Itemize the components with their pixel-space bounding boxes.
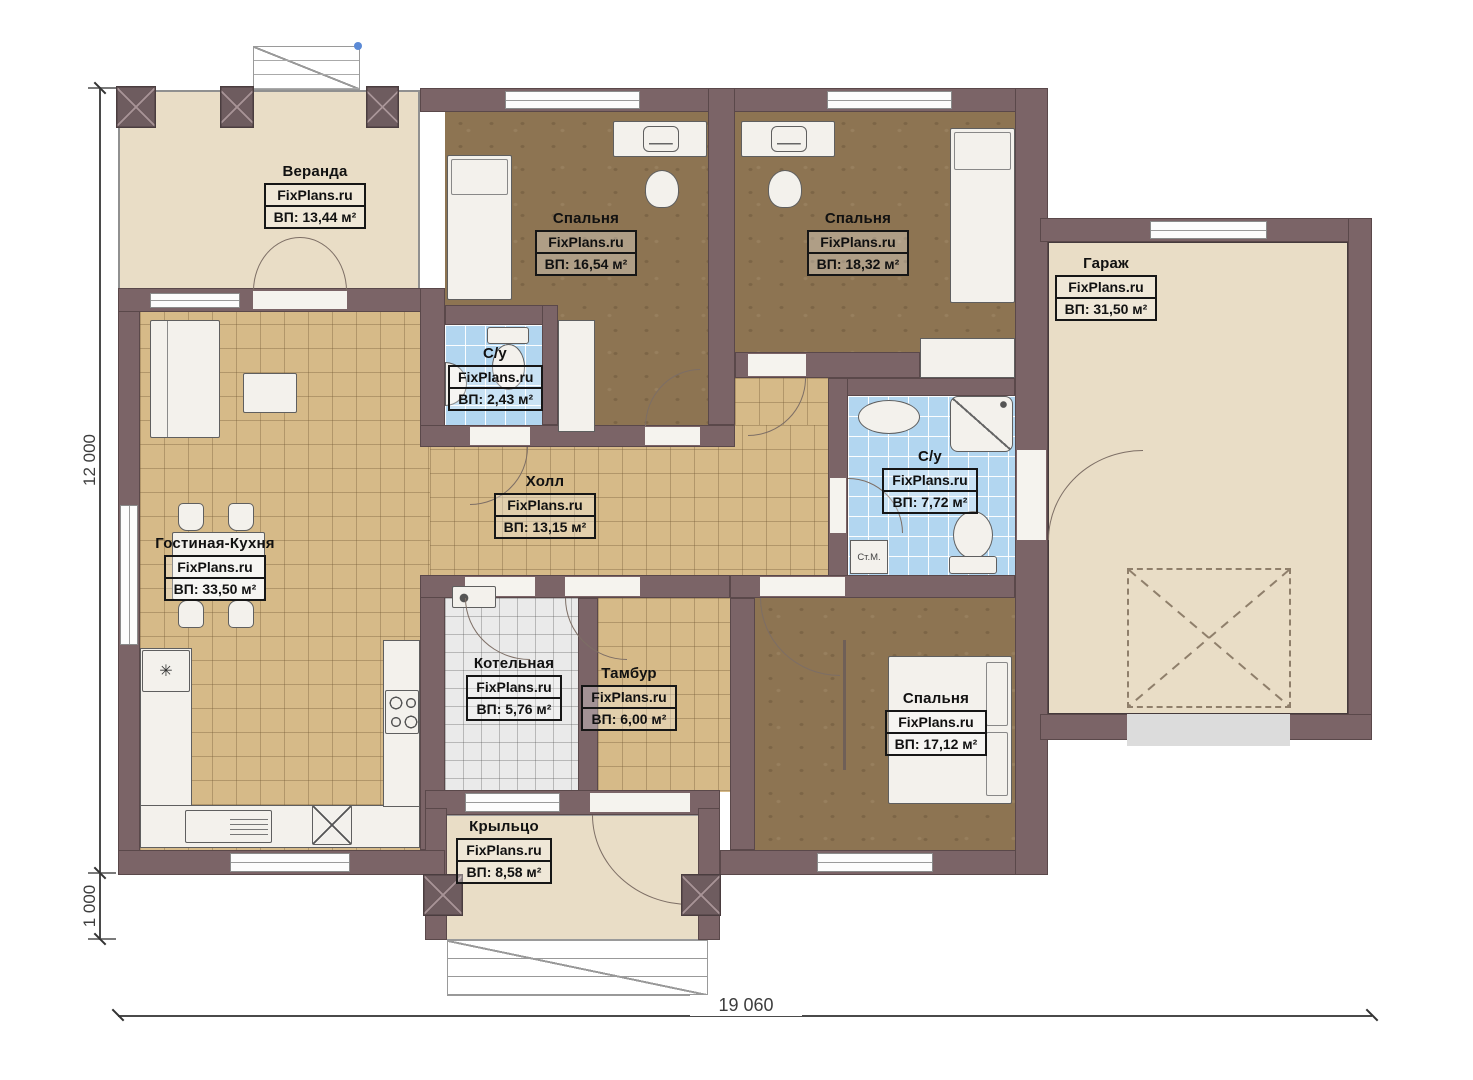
room-area: ВП: 13,44 м² <box>266 207 365 227</box>
desk-chair <box>768 170 802 208</box>
survey-point-dot <box>354 42 362 50</box>
room-label-boiler: Котельная FixPlans.ru ВП: 5,76 м² <box>460 655 568 721</box>
garage-top-window <box>1150 221 1267 239</box>
watermark: FixPlans.ru <box>1057 277 1156 299</box>
room-label-bathroom-large: С/у FixPlans.ru ВП: 7,72 м² <box>878 448 982 514</box>
dining-chair <box>228 600 254 628</box>
bathroom-large-door-opening <box>830 478 846 533</box>
wall-bedroom-divider <box>708 88 735 425</box>
bathroom-small-door-opening <box>470 427 530 445</box>
room-label-bedroom1: Спальня FixPlans.ru ВП: 16,54 м² <box>528 210 644 276</box>
floor-plan: ✳ Ст.М. <box>0 0 1473 1080</box>
sofa <box>150 320 220 438</box>
oven-appliance <box>185 810 272 843</box>
closet <box>920 338 1015 378</box>
room-title: Котельная <box>460 655 568 672</box>
porch-stairs <box>447 940 708 996</box>
room-title: С/у <box>448 345 542 362</box>
room-area: ВП: 17,12 м² <box>887 734 986 754</box>
kitchen-sink: ✳ <box>142 650 190 692</box>
room-title: Веранда <box>252 163 378 180</box>
garage-gate-opening <box>1127 714 1290 746</box>
room-label-bedroom2: Спальня FixPlans.ru ВП: 18,32 м² <box>800 210 916 276</box>
bedroom3-bottom-window <box>817 853 933 872</box>
room-title: Спальня <box>800 210 916 227</box>
room-label-hall: Холл FixPlans.ru ВП: 13,15 м² <box>492 473 598 539</box>
room-area: ВП: 8,58 м² <box>458 862 549 882</box>
wall-garage-right <box>1348 218 1372 740</box>
dining-chair <box>178 503 204 531</box>
room-label-porch: Крыльцо FixPlans.ru ВП: 8,58 м² <box>452 818 556 884</box>
bathroom-sink <box>858 400 920 434</box>
bedroom2-window <box>827 91 952 109</box>
washing-machine-label: Ст.М. <box>857 552 880 563</box>
veranda-stairs <box>253 46 360 90</box>
entry-door-opening <box>590 793 690 812</box>
watermark: FixPlans.ru <box>884 470 975 492</box>
room-area: ВП: 13,15 м² <box>496 517 595 537</box>
watermark: FixPlans.ru <box>583 687 674 709</box>
toilet-tank <box>949 556 997 574</box>
room-label-bedroom3: Спальня FixPlans.ru ВП: 17,12 м² <box>880 690 992 756</box>
watermark: FixPlans.ru <box>468 677 559 699</box>
wardrobe <box>558 320 595 432</box>
wall-living-right-upper <box>420 288 445 445</box>
room-area: ВП: 7,72 м² <box>884 492 975 512</box>
room-title: Тамбур <box>576 665 682 682</box>
toilet-tank <box>487 327 529 344</box>
room-title: Холл <box>492 473 598 490</box>
room-area: ВП: 5,76 м² <box>468 699 559 719</box>
room-label-garage: Гараж FixPlans.ru ВП: 31,50 м² <box>1048 255 1164 321</box>
sink-icon: ✳ <box>159 661 172 681</box>
room-label-bathroom-small: С/у FixPlans.ru ВП: 2,43 м² <box>448 345 542 411</box>
room-label-veranda: Веранда FixPlans.ru ВП: 13,44 м² <box>252 163 378 229</box>
bedroom1-door-opening <box>645 427 700 445</box>
bedroom2-door-opening <box>748 354 806 376</box>
wall-vestibule-bedroom3-divider <box>730 598 755 850</box>
room-title: Гараж <box>1048 255 1164 272</box>
veranda-wall-window <box>150 293 240 308</box>
bedroom1-window <box>505 91 640 109</box>
room-label-vestibule: Тамбур FixPlans.ru ВП: 6,00 м² <box>576 665 682 731</box>
kitchen-bottom-window <box>230 853 350 872</box>
watermark: FixPlans.ru <box>166 557 265 579</box>
stove <box>385 690 419 734</box>
watermark: FixPlans.ru <box>809 232 908 254</box>
room-area: ВП: 33,50 м² <box>166 579 265 599</box>
dim-height-main: 12 000 <box>80 410 100 510</box>
room-title: Гостиная-Кухня <box>152 535 278 552</box>
room-title: Крыльцо <box>452 818 556 835</box>
room-title: Спальня <box>880 690 992 707</box>
wall-bathroom-small-right <box>542 305 558 425</box>
veranda-post <box>116 86 156 128</box>
watermark: FixPlans.ru <box>458 840 549 862</box>
wall-bathroom-large-top <box>828 378 1015 396</box>
room-area: ВП: 6,00 м² <box>583 709 674 729</box>
veranda-post <box>366 86 399 128</box>
dim-width-total: 19 060 <box>690 995 802 1016</box>
laptop <box>771 126 807 152</box>
vestibule-door-opening <box>565 577 640 596</box>
room-area: ВП: 18,32 м² <box>809 254 908 274</box>
watermark: FixPlans.ru <box>496 495 595 517</box>
room-area: ВП: 16,54 м² <box>537 254 636 274</box>
kitchen-counter-bottom <box>140 805 420 848</box>
pillow <box>954 132 1011 170</box>
living-left-window <box>120 505 138 645</box>
parking-x-icon <box>1129 570 1289 706</box>
dining-chair <box>178 600 204 628</box>
watermark: FixPlans.ru <box>537 232 636 254</box>
dining-chair <box>228 503 254 531</box>
bedroom3-door-opening <box>760 577 845 596</box>
refrigerator <box>312 805 352 845</box>
room-area: ВП: 2,43 м² <box>450 389 541 409</box>
shower <box>950 396 1013 452</box>
room-area: ВП: 31,50 м² <box>1057 299 1156 319</box>
room-label-living-kitchen: Гостиная-Кухня FixPlans.ru ВП: 33,50 м² <box>152 535 278 601</box>
porch-window <box>465 793 560 812</box>
coffee-table <box>243 373 297 413</box>
porch-post <box>681 874 721 916</box>
laptop <box>643 126 679 152</box>
pillow <box>451 159 508 195</box>
veranda-french-door-opening <box>253 291 347 309</box>
washing-machine: Ст.М. <box>850 540 888 574</box>
watermark: FixPlans.ru <box>887 712 986 734</box>
watermark: FixPlans.ru <box>450 367 541 389</box>
veranda-post <box>220 86 254 128</box>
parking-space-dashed <box>1127 568 1291 708</box>
room-title: Спальня <box>528 210 644 227</box>
toilet-bowl <box>953 511 993 559</box>
garage-door-opening <box>1017 450 1046 540</box>
desk-chair <box>645 170 679 208</box>
bedroom3-partition-line <box>843 640 846 770</box>
room-title: С/у <box>878 448 982 465</box>
dim-line-left <box>99 88 101 940</box>
watermark: FixPlans.ru <box>266 185 365 207</box>
